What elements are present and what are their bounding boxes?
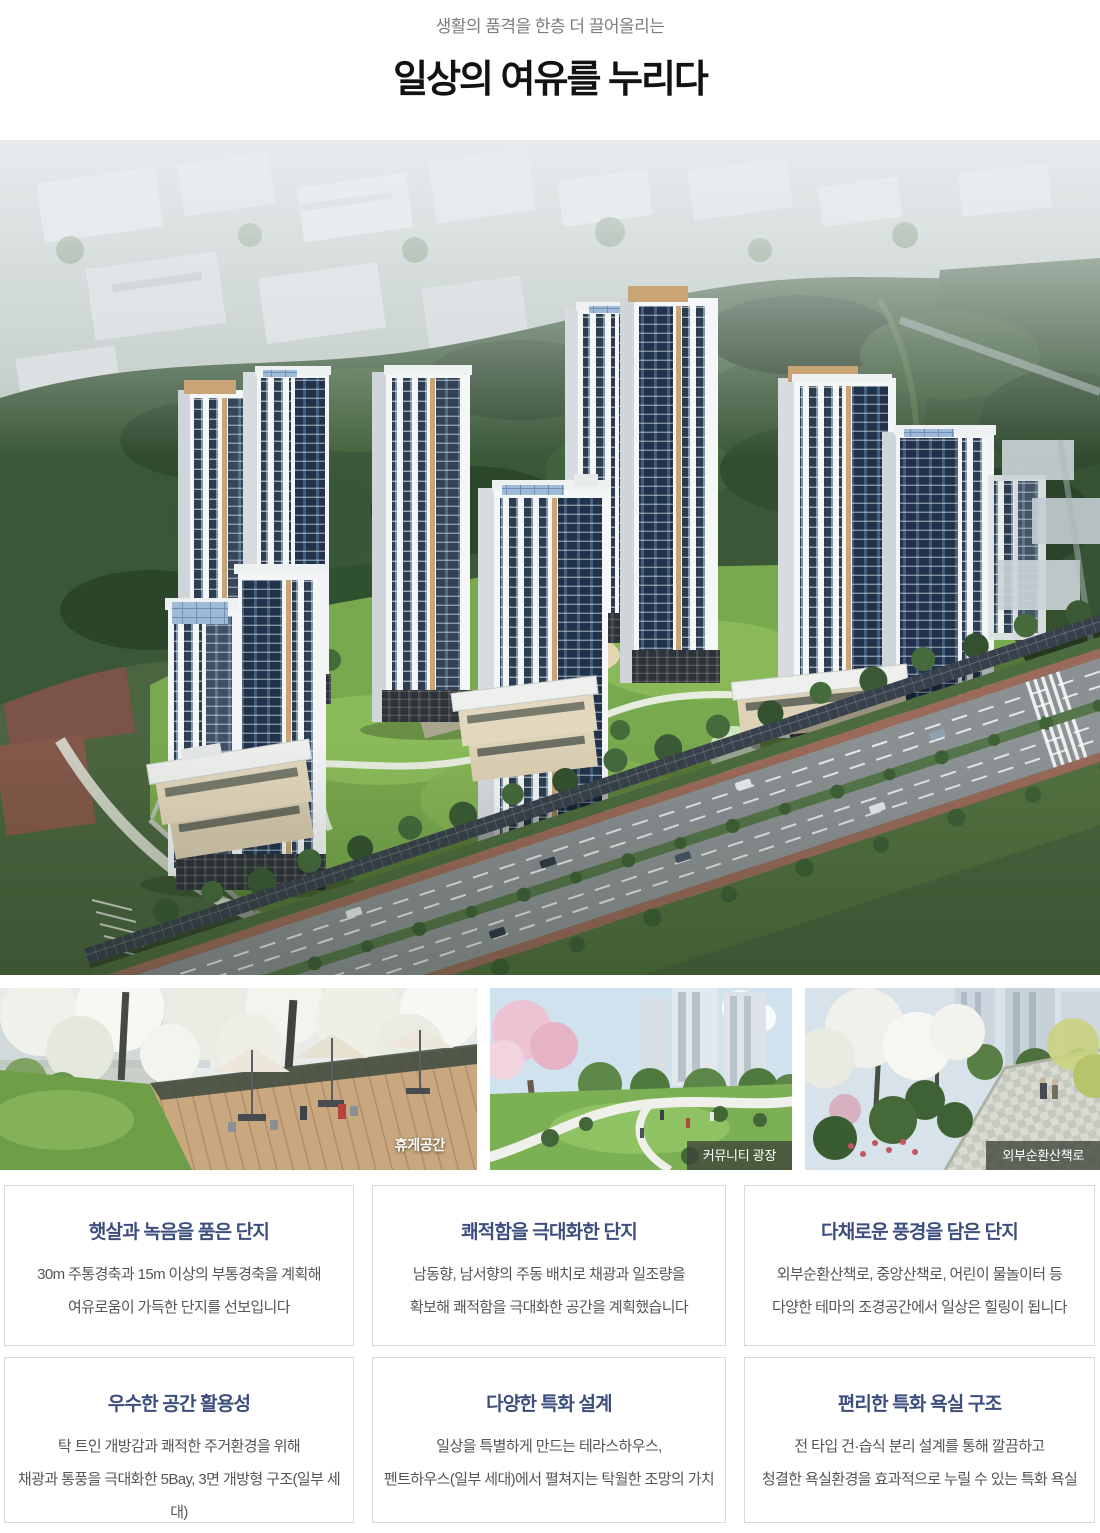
section-subtitle: 생활의 품격을 한층 더 끌어올리는 xyxy=(0,12,1100,37)
feature-cards: 햇살과 녹음을 품은 단지 30m 주통경축과 15m 이상의 부통경축을 계획… xyxy=(4,1185,1097,1523)
card-line: 30m 주통경축과 15m 이상의 부통경축을 계획해 xyxy=(13,1258,345,1291)
card-title: 햇살과 녹음을 품은 단지 xyxy=(13,1217,345,1244)
tower xyxy=(372,365,472,722)
card-title: 편리한 특화 욕실 구조 xyxy=(753,1389,1086,1416)
card-line: 청결한 욕실환경을 효과적으로 누릴 수 있는 특화 욕실 xyxy=(753,1463,1086,1496)
promo-page: 생활의 품격을 한층 더 끌어올리는 일상의 여유를 누리다 xyxy=(0,0,1100,1533)
photo-strip: 휴게공간 xyxy=(0,988,1100,1170)
card-line: 여유로움이 가득한 단지를 선보입니다 xyxy=(13,1291,345,1324)
feature-card-scenery: 다채로운 풍경을 담은 단지 외부순환산책로, 중앙산책로, 어린이 물놀이터 … xyxy=(744,1185,1095,1346)
photo-community-plaza: 커뮤니티 광장 xyxy=(490,988,792,1170)
card-line: 펜트하우스(일부 세대)에서 펼쳐지는 탁월한 조망의 가치 xyxy=(381,1463,717,1496)
card-line: 탁 트인 개방감과 쾌적한 주거환경을 위해 xyxy=(13,1430,345,1463)
photo-walking-trail: 외부순환산책로 xyxy=(805,988,1100,1170)
card-title: 다채로운 풍경을 담은 단지 xyxy=(753,1217,1086,1244)
section-title: 일상의 여유를 누리다 xyxy=(0,48,1100,103)
feature-card-comfort: 쾌적함을 극대화한 단지 남동향, 남서향의 주동 배치로 채광과 일조량을 확… xyxy=(372,1185,726,1346)
card-line: 채광과 통풍을 극대화한 5Bay, 3면 개방형 구조(일부 세대) xyxy=(13,1463,345,1529)
photo-label: 휴게공간 xyxy=(379,1131,461,1160)
tower xyxy=(620,286,720,683)
card-line: 외부순환산책로, 중앙산책로, 어린이 물놀이터 등 xyxy=(753,1258,1086,1291)
card-title: 다양한 특화 설계 xyxy=(381,1389,717,1416)
hero-illustration xyxy=(0,140,1100,975)
photo-rest-area: 휴게공간 xyxy=(0,988,477,1170)
card-title: 쾌적함을 극대화한 단지 xyxy=(381,1217,717,1244)
hero-vignette xyxy=(0,740,1100,975)
feature-card-sunlight: 햇살과 녹음을 품은 단지 30m 주통경축과 15m 이상의 부통경축을 계획… xyxy=(4,1185,354,1346)
card-title: 우수한 공간 활용성 xyxy=(13,1389,345,1416)
hero-haze xyxy=(0,140,1100,460)
feature-card-space: 우수한 공간 활용성 탁 트인 개방감과 쾌적한 주거환경을 위해 채광과 통풍… xyxy=(4,1357,354,1523)
feature-card-design: 다양한 특화 설계 일상을 특별하게 만드는 테라스하우스, 펜트하우스(일부 … xyxy=(372,1357,726,1523)
card-line: 남동향, 남서향의 주동 배치로 채광과 일조량을 xyxy=(381,1258,717,1291)
card-line: 다양한 테마의 조경공간에서 일상은 힐링이 됩니다 xyxy=(753,1291,1086,1324)
card-line: 확보해 쾌적함을 극대화한 공간을 계획했습니다 xyxy=(381,1291,717,1324)
hero-aerial-view xyxy=(0,140,1100,975)
card-line: 일상을 특별하게 만드는 테라스하우스, xyxy=(381,1430,717,1463)
photo-label: 커뮤니티 광장 xyxy=(687,1141,792,1170)
photo-label: 외부순환산책로 xyxy=(986,1141,1100,1170)
feature-card-bathroom: 편리한 특화 욕실 구조 전 타입 건·습식 분리 설계를 통해 깔끔하고 청결… xyxy=(744,1357,1095,1523)
card-line: 전 타입 건·습식 분리 설계를 통해 깔끔하고 xyxy=(753,1430,1086,1463)
section-header: 생활의 품격을 한층 더 끌어올리는 일상의 여유를 누리다 xyxy=(0,0,1100,140)
